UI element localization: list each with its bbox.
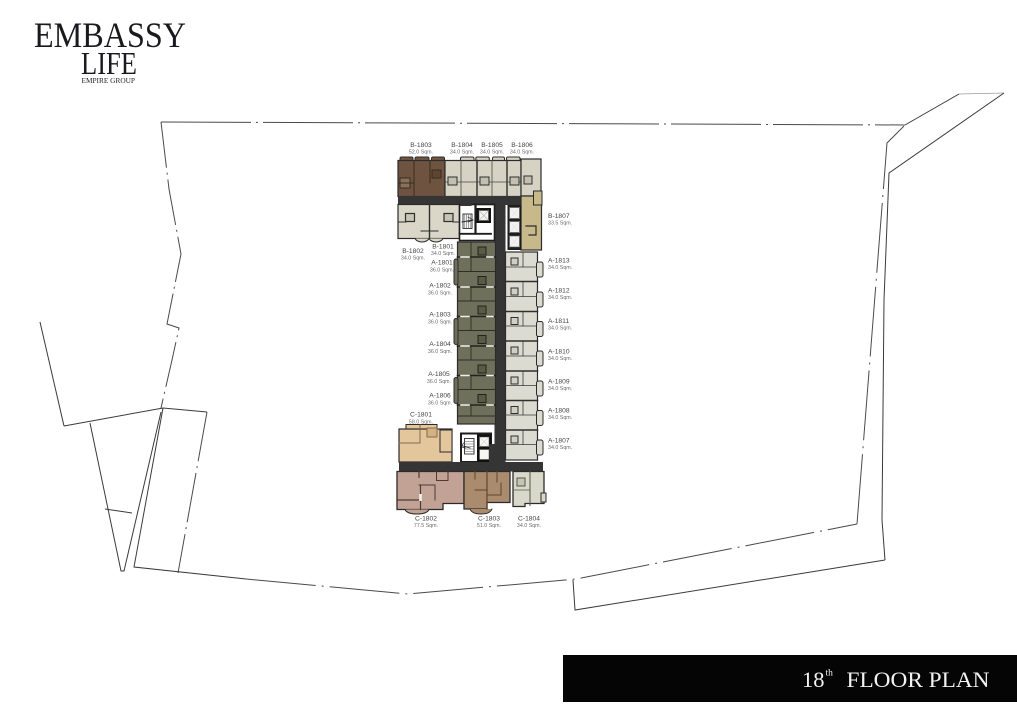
svg-text:34.0 Sqm.: 34.0 Sqm. — [548, 265, 572, 271]
svg-text:51.0 Sqm.: 51.0 Sqm. — [477, 523, 501, 529]
svg-text:B-1807: B-1807 — [548, 213, 570, 220]
svg-text:B-1805: B-1805 — [481, 142, 503, 149]
svg-text:C-1803: C-1803 — [478, 516, 500, 523]
svg-text:33.5 Sqm.: 33.5 Sqm. — [548, 221, 572, 227]
svg-text:34.0 Sqm.: 34.0 Sqm. — [548, 386, 572, 392]
svg-text:36.0 Sqm.: 36.0 Sqm. — [428, 320, 452, 326]
svg-text:34.0 Sqm.: 34.0 Sqm. — [510, 150, 534, 156]
svg-text:34.0 Sqm.: 34.0 Sqm. — [548, 326, 572, 332]
svg-text:B-1801: B-1801 — [432, 244, 454, 251]
svg-text:C-1804: C-1804 — [518, 516, 540, 523]
svg-text:34.0 Sqm.: 34.0 Sqm. — [480, 150, 504, 156]
svg-text:B-1804: B-1804 — [451, 142, 473, 149]
svg-text:C-1801: C-1801 — [410, 412, 432, 419]
svg-text:36.0 Sqm.: 36.0 Sqm. — [427, 379, 451, 385]
svg-text:A-1809: A-1809 — [548, 379, 570, 386]
svg-text:34.0 Sqm.: 34.0 Sqm. — [517, 523, 541, 529]
svg-text:A-1805: A-1805 — [428, 371, 450, 378]
svg-text:34.0 Sqm.: 34.0 Sqm. — [548, 415, 572, 421]
svg-text:B-1802: B-1802 — [402, 248, 424, 255]
svg-text:A-1801: A-1801 — [431, 260, 453, 267]
svg-text:58.0 Sqm.: 58.0 Sqm. — [409, 420, 433, 426]
svg-text:A-1808: A-1808 — [548, 408, 570, 415]
svg-text:B-1806: B-1806 — [511, 142, 533, 149]
svg-text:A-1810: A-1810 — [548, 349, 570, 356]
svg-text:34.0 Sqm.: 34.0 Sqm. — [548, 295, 572, 301]
svg-text:A-1812: A-1812 — [548, 288, 570, 295]
svg-text:A-1804: A-1804 — [429, 341, 451, 348]
svg-text:34.0 Sqm.: 34.0 Sqm. — [548, 445, 572, 451]
svg-text:34.0 Sqm.: 34.0 Sqm. — [548, 356, 572, 362]
svg-text:34.0 Sqm.: 34.0 Sqm. — [450, 150, 474, 156]
svg-text:36.0 Sqm.: 36.0 Sqm. — [428, 401, 452, 407]
svg-text:36.0 Sqm.: 36.0 Sqm. — [428, 349, 452, 355]
svg-text:A-1802: A-1802 — [429, 283, 451, 290]
svg-text:A-1811: A-1811 — [548, 318, 569, 325]
svg-text:36.0 Sqm.: 36.0 Sqm. — [428, 291, 452, 297]
svg-text:34.0 Sqm.: 34.0 Sqm. — [401, 256, 425, 262]
svg-text:FLOOR PLAN: FLOOR PLAN — [847, 667, 990, 692]
svg-text:LIFE: LIFE — [81, 45, 137, 81]
svg-text:A-1803: A-1803 — [429, 312, 451, 319]
svg-text:A-1807: A-1807 — [548, 438, 570, 445]
svg-text:th: th — [826, 669, 834, 679]
svg-text:EMPIRE GROUP: EMPIRE GROUP — [82, 77, 136, 85]
svg-text:34.0 Sqm.: 34.0 Sqm. — [431, 251, 455, 257]
svg-text:18: 18 — [802, 667, 825, 692]
svg-text:A-1813: A-1813 — [548, 258, 570, 265]
svg-text:A-1806: A-1806 — [429, 393, 451, 400]
svg-text:77.5 Sqm.: 77.5 Sqm. — [414, 523, 438, 529]
svg-text:C-1802: C-1802 — [415, 516, 437, 523]
svg-text:52.0 Sqm.: 52.0 Sqm. — [409, 150, 433, 156]
svg-text:B-1803: B-1803 — [410, 142, 432, 149]
svg-text:36.0 Sqm.: 36.0 Sqm. — [430, 268, 454, 274]
